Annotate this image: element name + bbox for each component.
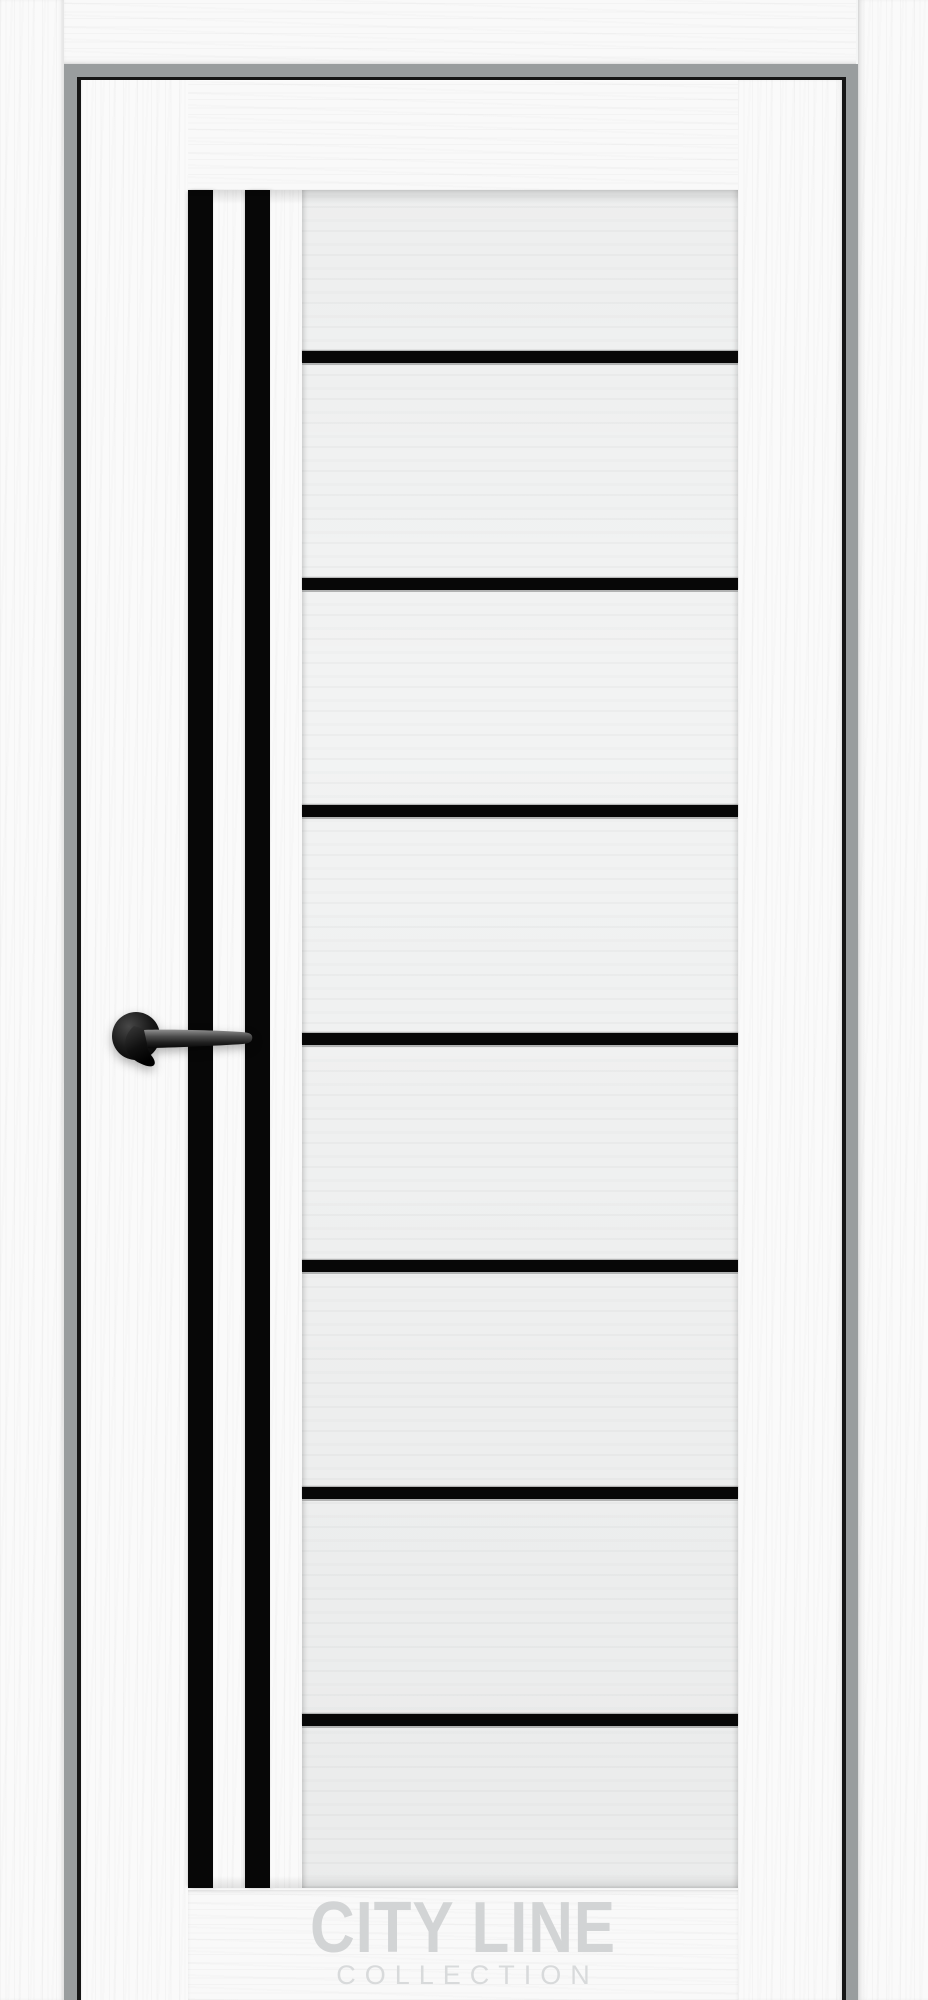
door-casing-head: [64, 0, 858, 64]
interior-door-product-photo: CITY LINE COLLECTION: [0, 0, 928, 2000]
watermark: CITY LINE COLLECTION: [188, 1888, 738, 2000]
glazing-aperture: [188, 190, 738, 1888]
horizontal-black-insert-3: [302, 805, 738, 817]
watermark-brand-text: CITY LINE: [227, 1892, 700, 1964]
handle-lever-bar: [144, 1030, 252, 1049]
frosted-glass-pane: [302, 190, 738, 1888]
door-handle: [100, 1000, 270, 1080]
door-casing-right: [856, 0, 928, 2000]
horizontal-black-insert-6: [302, 1487, 738, 1499]
glazing-mullion-2: [270, 190, 302, 1888]
horizontal-black-insert-5: [302, 1260, 738, 1272]
horizontal-black-insert-1: [302, 351, 738, 363]
horizontal-black-insert-2: [302, 578, 738, 590]
leaf-stile-right: [738, 80, 842, 2000]
horizontal-black-insert-4: [302, 1033, 738, 1045]
door-casing-left: [0, 0, 66, 2000]
leaf-rail-top: [188, 80, 738, 190]
horizontal-black-insert-7: [302, 1714, 738, 1726]
